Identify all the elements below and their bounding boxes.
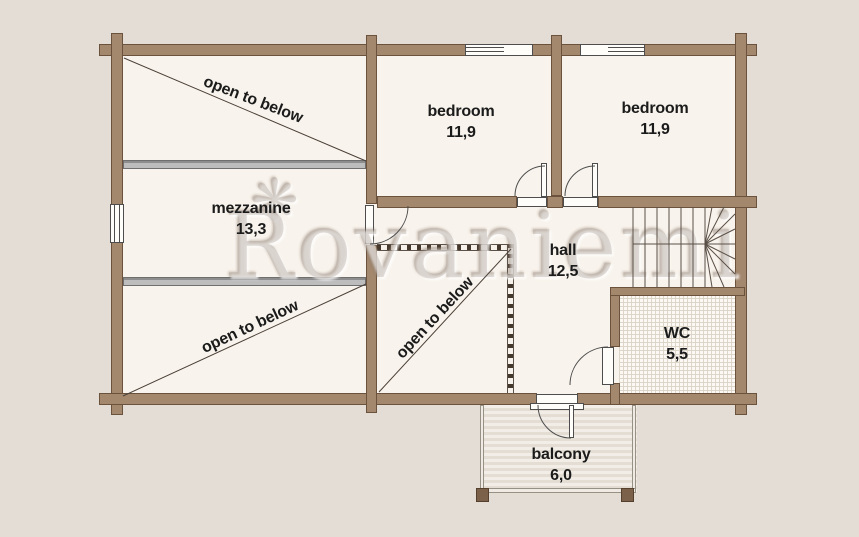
opening-railing-top (377, 244, 514, 251)
room-label-hall: hall 12,5 (548, 240, 578, 282)
balcony-rail-right (632, 405, 636, 493)
wall-bedrooms-hall-right (598, 196, 757, 208)
window-br-line2 (608, 51, 644, 52)
door-bedroom-left-leaf (541, 163, 547, 197)
wall-bottom-right (577, 393, 757, 405)
balcony-rail-bottom (480, 488, 636, 493)
room-label-mezzanine: mezzanine 13,3 (211, 198, 290, 240)
balcony-post-right (621, 488, 634, 502)
window-br-line1 (608, 47, 644, 48)
door-bedroom-right-threshold (563, 197, 598, 207)
floor-plan: ❋ Rovaniemi open to below mezzanine 13,3… (0, 0, 859, 537)
door-wc-leaf (602, 347, 614, 385)
wall-wc-left-lower (610, 383, 620, 405)
door-balcony-sill (530, 403, 584, 410)
window-bedroom-right (580, 44, 645, 56)
balcony-rail-left (480, 405, 484, 493)
door-balcony-leaf (569, 405, 574, 438)
wall-wc-top (610, 287, 745, 296)
room-label-wc: WC 5,5 (664, 323, 690, 365)
wall-bedrooms-hall-left (377, 196, 517, 208)
room-label-bedroom-left: bedroom 11,9 (427, 101, 494, 143)
wall-bedroom-divider (551, 35, 562, 196)
wall-bedrooms-hall-mid (547, 196, 563, 208)
wall-mezzanine-divider-upper (366, 35, 377, 204)
door-bedroom-right-leaf (592, 163, 598, 197)
mezzanine-beam-bottom (123, 277, 366, 286)
window-left-line2 (119, 205, 120, 242)
wall-wc-left-upper (610, 287, 620, 347)
door-mezzanine-leaf (365, 205, 374, 244)
opening-railing-right (507, 244, 514, 393)
window-left-wall (110, 204, 124, 243)
wall-top (99, 44, 757, 56)
window-bl-line2 (466, 51, 504, 52)
window-bl-line1 (466, 47, 504, 48)
room-label-balcony: balcony 6,0 (531, 444, 590, 486)
wall-mezzanine-divider-lower (366, 245, 377, 413)
wall-bottom-left (99, 393, 537, 405)
door-bedroom-left-threshold (517, 197, 547, 207)
window-bedroom-left (465, 44, 533, 56)
balcony-post-left (476, 488, 489, 502)
mezzanine-beam-top (123, 160, 366, 169)
window-left-line1 (114, 205, 115, 242)
wall-right (735, 33, 747, 415)
room-label-bedroom-right: bedroom 11,9 (621, 98, 688, 140)
